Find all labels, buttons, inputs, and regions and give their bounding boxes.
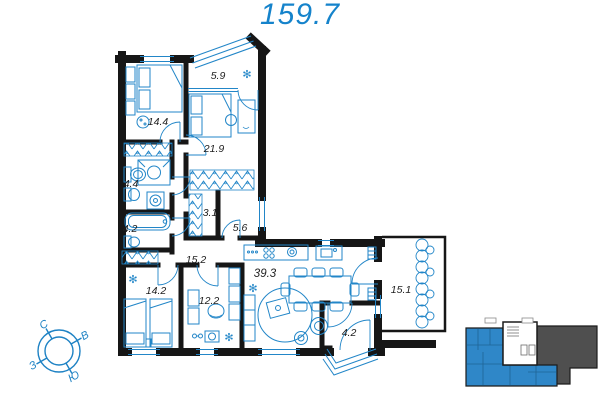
room-label-bedroom-1: 14.4 bbox=[148, 116, 168, 128]
room-label-bathroom-2: 4.2 bbox=[123, 223, 138, 235]
outer-walls bbox=[119, 38, 432, 352]
plant-icon: ✻ bbox=[242, 69, 251, 81]
dumbbell-icon bbox=[193, 334, 203, 338]
plant-icon: ✻ bbox=[224, 332, 233, 344]
sink-icon bbox=[124, 236, 140, 248]
room-label-bedroom-2: 21.9 bbox=[204, 143, 224, 155]
room-label-corridor: 15.2 bbox=[186, 254, 206, 266]
compass-rose bbox=[37, 329, 82, 374]
shower-icon bbox=[138, 160, 170, 185]
desk-icon bbox=[226, 100, 256, 133]
minimap-core bbox=[503, 322, 537, 365]
building-minimap bbox=[466, 318, 597, 386]
radiator-icon bbox=[368, 247, 376, 300]
floorplan-page: 159.7 bbox=[0, 0, 600, 400]
lounge-area-icon bbox=[258, 288, 328, 345]
room-label-bedroom-4: 12.2 bbox=[199, 295, 219, 307]
room-label-bathroom-1: 4.4 bbox=[124, 178, 139, 190]
room-label-living-kitchen: 39.3 bbox=[254, 268, 276, 280]
washing-machine-icon bbox=[147, 192, 164, 209]
shelf-column-icon bbox=[244, 295, 255, 341]
single-bed-icon bbox=[150, 299, 172, 347]
bed-icon bbox=[189, 94, 231, 137]
plant-icon: ✻ bbox=[128, 274, 137, 286]
single-bed-icon bbox=[124, 299, 146, 347]
terrace-plants-icon bbox=[416, 239, 434, 328]
room-label-loggia: 5.9 bbox=[211, 70, 226, 82]
kitchen-counter-icon bbox=[244, 245, 308, 260]
camera-box-icon bbox=[205, 331, 219, 342]
closet-icon bbox=[126, 67, 135, 115]
room-label-terrace: 15.1 bbox=[391, 284, 411, 296]
room-label-hall-nook: 5.6 bbox=[233, 222, 248, 234]
loggia-glazing bbox=[190, 36, 256, 68]
room-label-entrance-hall: 4.2 bbox=[342, 327, 357, 339]
minimap-balcony bbox=[485, 318, 496, 323]
bed-icon bbox=[137, 65, 182, 112]
minimap-balcony bbox=[522, 318, 533, 323]
plant-icon: ✻ bbox=[248, 283, 257, 295]
kitchen-island-icon bbox=[316, 246, 342, 260]
room-label-wardrobe-room: 3.1 bbox=[203, 207, 218, 219]
room-label-bedroom-3: 14.2 bbox=[146, 285, 166, 297]
